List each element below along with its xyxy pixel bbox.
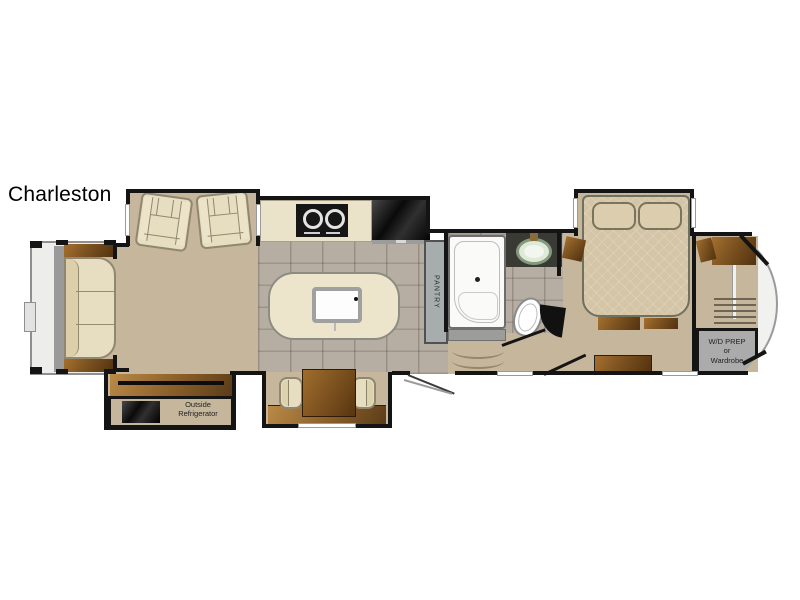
- wd-label-line1: W/D PREP: [708, 337, 745, 346]
- bathroom-sink: [516, 238, 552, 265]
- wd-label-line2: or: [724, 346, 731, 355]
- dinette-table: [302, 369, 356, 417]
- wall: [426, 229, 576, 233]
- shower-drain: [475, 277, 480, 282]
- wall: [258, 196, 430, 200]
- wall: [444, 232, 448, 332]
- dinette-chair-left: [279, 377, 303, 409]
- window: [497, 371, 533, 376]
- wall: [698, 371, 748, 375]
- wd-label-line3: Wardrobe: [711, 356, 744, 365]
- outside-refrigerator: [122, 401, 160, 423]
- window: [298, 423, 356, 428]
- wall: [113, 243, 117, 259]
- rv-floorplan: Charleston: [0, 0, 800, 600]
- wall: [56, 240, 68, 245]
- window: [662, 371, 698, 376]
- wall: [557, 232, 561, 276]
- bed-foot-bench-right: [644, 318, 678, 329]
- outside-fridge-label-line2: Refrigerator: [178, 409, 218, 418]
- wall: [104, 240, 116, 245]
- wall: [574, 189, 694, 193]
- wall: [126, 189, 260, 193]
- window: [573, 198, 578, 228]
- outside-fridge-label-line1: Outside: [185, 400, 211, 409]
- refrigerator: [372, 199, 430, 244]
- outside-refrigerator-bay: Outside Refrigerator: [108, 396, 234, 428]
- shower-ledge: [448, 329, 506, 341]
- window: [125, 204, 130, 236]
- sofa: [64, 257, 116, 359]
- wall: [104, 372, 108, 430]
- pillow-left: [592, 202, 636, 230]
- exterior-tv-cabinet: [110, 374, 232, 396]
- pantry-label: PANTRY: [433, 275, 440, 309]
- island-sink: [312, 287, 362, 323]
- shower: [448, 235, 506, 329]
- wall: [388, 372, 392, 428]
- island-faucet: [354, 297, 358, 301]
- bed: [582, 195, 690, 317]
- model-title: Charleston: [8, 183, 112, 207]
- wall: [232, 372, 236, 430]
- pillow-right: [638, 202, 682, 230]
- sofa-trim-top: [64, 244, 114, 257]
- wall: [104, 426, 236, 430]
- window: [256, 204, 261, 236]
- cooktop: [296, 204, 348, 237]
- kitchen-island: [268, 272, 400, 340]
- slide-wall: [54, 246, 64, 372]
- recliner-right: [195, 190, 252, 249]
- steps: [450, 341, 506, 371]
- rear-latch: [24, 302, 36, 332]
- window: [691, 198, 696, 228]
- wall: [692, 232, 696, 372]
- wall: [455, 371, 497, 375]
- bed-foot-bench-left: [598, 317, 640, 330]
- recliner-left: [134, 192, 193, 253]
- living-room-floor: [113, 243, 265, 374]
- wall: [56, 369, 68, 374]
- wall: [262, 372, 266, 428]
- wall: [533, 371, 662, 375]
